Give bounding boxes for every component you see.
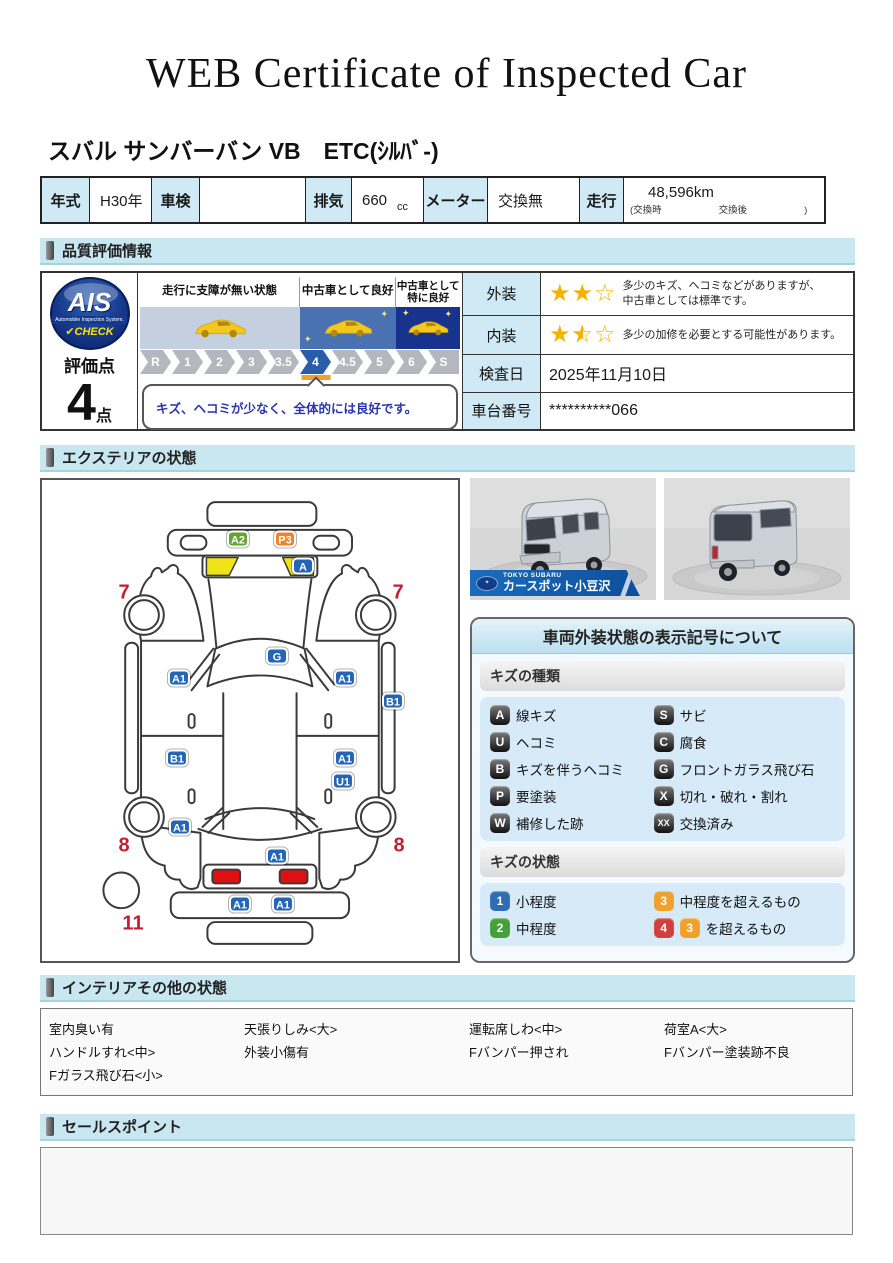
state-badge-icon: 3 (654, 891, 674, 911)
damage-marker: A1 (334, 750, 356, 767)
exterior-rating-row: 外装 ★★☆ 多少のキズ、ヘコミなどがありますが、 中古車としては標準です。 (463, 273, 853, 316)
zone-band-2: ✦ ✦ (300, 307, 396, 349)
interior-rating-row: 内装 ★★☆☆ 多少の加修を必要とする可能性があります。 (463, 316, 853, 355)
spec-mileage-label: 走行 (580, 178, 624, 222)
page-title: WEB Certificate of Inspected Car (0, 50, 893, 98)
section-marker-icon (46, 978, 54, 997)
inspection-date-row: 検査日 2025年11月10日 (463, 355, 853, 392)
photo-rear-exterior (664, 478, 850, 600)
legend-kind-item: P 要塗装 (490, 786, 648, 806)
interior-section-title: インテリアその他の状態 (62, 977, 227, 998)
legend-kind-item: S サビ (654, 705, 835, 725)
spec-inspection-label: 車検 (152, 178, 200, 222)
legend-state-item: 4 3 を超えるもの (654, 918, 835, 938)
wheel-number: 8 (118, 835, 129, 858)
interior-notes-column: 室内臭い有ハンドルすれ<中>Fガラス飛び石<小> (49, 1019, 244, 1085)
ais-check-label: ✔CHECK (65, 325, 113, 338)
mileage-number: 48,596km (630, 184, 714, 201)
kind-label: 腐食 (680, 732, 707, 752)
certificate-page: WEB Certificate of Inspected Car スバル サンバ… (0, 0, 893, 1263)
kind-badge-icon: U (490, 732, 510, 752)
kind-label: ヘコミ (516, 732, 557, 752)
exterior-right-column: ✦ TOKYO SUBARU カースポット小豆沢 (470, 478, 855, 963)
exterior-section-title: エクステリアの状態 (62, 447, 197, 468)
scale-segment: 2 (204, 350, 235, 374)
legend-kind-item: W 補修した跡 (490, 813, 648, 833)
sales-section-title: セールスポイント (62, 1116, 182, 1137)
damage-marker: P3 (274, 531, 296, 548)
legend-title: 車両外装状態の表示記号について (472, 619, 853, 654)
damage-marker: A1 (266, 848, 288, 865)
interior-notes-box: 室内臭い有ハンドルすれ<中>Fガラス飛び石<小> 天張りしみ<大>外装小傷有 運… (40, 1008, 853, 1096)
spec-inspection-value (200, 178, 306, 222)
interior-note: 外装小傷有 (244, 1042, 469, 1065)
kind-label: 要塗装 (516, 786, 557, 806)
interior-stars: ★★☆☆ (549, 323, 617, 347)
interior-note: Fガラス飛び石<小> (49, 1065, 244, 1088)
state-label: 中程度を超えるもの (680, 891, 801, 911)
quality-section-bar: 品質評価情報 (40, 238, 855, 265)
damage-marker: A1 (334, 670, 356, 687)
damage-marker: A1 (168, 670, 190, 687)
interior-note: 天張りしみ<大> (244, 1019, 469, 1042)
kind-badge-icon: XX (654, 813, 674, 833)
damage-marker: B1 (382, 693, 404, 710)
score-unit: 点 (96, 409, 112, 425)
kind-badge-icon: S (654, 705, 674, 725)
mileage-note: (交換時 交換後 ) (630, 202, 807, 216)
legend-kind-item: G フロントガラス飛び石 (654, 759, 835, 779)
damage-marker: A2 (227, 531, 249, 548)
scale-segment: 5 (364, 350, 395, 374)
quality-box: AIS Automobile Inspection System. ✔CHECK… (40, 271, 855, 431)
legend-kind-item: XX 交換済み (654, 813, 835, 833)
score-value: 4 (67, 377, 96, 429)
displacement-number: 660 (362, 192, 387, 209)
interior-notes-column: 荷室A<大>Fバンパー塗装跡不良 (664, 1019, 844, 1085)
spec-year-value: H30年 (90, 178, 152, 222)
dealer-banner-text: TOKYO SUBARU カースポット小豆沢 (503, 573, 610, 592)
vin-value: **********066 (541, 393, 853, 429)
interior-note: Fバンパー押され (469, 1042, 664, 1065)
scale-segment: 3.5 (268, 350, 299, 374)
section-marker-icon (46, 241, 54, 260)
legend-states-panel: 1 小程度 3 中程度を超えるもの 2 中程度 4 (480, 883, 845, 946)
scale-pointer-row (140, 374, 460, 381)
sparkle-icon: ✦ (402, 308, 410, 319)
ais-column: AIS Automobile Inspection System. ✔CHECK… (42, 273, 138, 429)
sales-section-bar: セールスポイント (40, 1114, 855, 1141)
vin-label: 車台番号 (463, 393, 541, 429)
damage-marker: U1 (332, 773, 354, 790)
legend-kind-item: X 切れ・破れ・割れ (654, 786, 835, 806)
section-marker-icon (46, 448, 54, 467)
state-badge-icon: 3 (680, 918, 700, 938)
wheel-number: 7 (118, 582, 129, 605)
kind-badge-icon: X (654, 786, 674, 806)
spec-mileage-value: 48,596km (交換時 交換後 ) (624, 178, 824, 222)
vehicle-name: スバル サンバーバン VB ETC(ｼﾙﾊﾞ-) (48, 132, 893, 166)
exterior-rating-value: ★★☆ 多少のキズ、ヘコミなどがありますが、 中古車としては標準です。 (541, 273, 853, 315)
inspection-date-value: 2025年11月10日 (541, 355, 853, 391)
spec-meter-label: メーター (424, 178, 488, 222)
kind-badge-icon: P (490, 786, 510, 806)
damage-marker: A1 (229, 896, 251, 913)
kind-label: 線キズ (516, 705, 557, 725)
zone-label-1: 走行に支障が無い状態 (140, 277, 299, 307)
scale-segment: 4.5 (332, 350, 363, 374)
interior-note: Fバンパー塗装跡不良 (664, 1042, 844, 1065)
spec-displacement-value: 660 cc (352, 178, 424, 222)
van-outline-drawing (42, 480, 458, 961)
interior-rating-label: 内装 (463, 316, 541, 354)
spec-meter-value: 交換無 (488, 178, 580, 222)
kind-badge-icon: A (490, 705, 510, 725)
photo-front-exterior: ✦ TOKYO SUBARU カースポット小豆沢 (470, 478, 656, 600)
scale-segment: 4 (300, 350, 331, 374)
legend-kinds-panel: A 線キズ S サビ U ヘコミ (480, 697, 845, 841)
wheel-number: 7 (392, 582, 403, 605)
sparkle-icon: ✦ (380, 309, 388, 320)
zone-band: ✦ ✦ ✦ ✦ (140, 307, 460, 349)
legend-kinds-title: キズの種類 (480, 661, 845, 691)
legend-body: キズの種類 A 線キズ S サビ (472, 654, 853, 959)
vin-row: 車台番号 **********066 (463, 393, 853, 429)
interior-note: 荷室A<大> (664, 1019, 844, 1042)
scale-segment: 3 (236, 350, 267, 374)
kind-badge-icon: W (490, 813, 510, 833)
legend-state-item: 2 中程度 (490, 918, 648, 938)
dealer-name: カースポット小豆沢 (503, 580, 610, 593)
kind-label: フロントガラス飛び石 (680, 759, 815, 779)
rating-comment-box: キズ、ヘコミが少なく、全体的には良好です。 (142, 384, 458, 430)
rating-scale: R 1 2 3 3.5 4 4.5 5 6 S (140, 350, 460, 374)
zone-label-3: 中古車として 特に良好 (395, 277, 460, 307)
interior-rating-note: 多少の加修を必要とする可能性があります。 (623, 328, 842, 343)
damage-marker: G (266, 648, 288, 665)
dealer-banner: ✦ TOKYO SUBARU カースポット小豆沢 (470, 570, 640, 596)
interior-notes-column: 運転席しわ<中>Fバンパー押され (469, 1019, 664, 1085)
interior-note: 運転席しわ<中> (469, 1019, 664, 1042)
kind-label: 切れ・破れ・割れ (680, 786, 788, 806)
exterior-content: A2 P3 A G A1 A1 B1 B1 (40, 478, 855, 963)
state-badge-icon: 4 (654, 918, 674, 938)
legend-state-item: 3 中程度を超えるもの (654, 891, 835, 911)
damage-diagram: A2 P3 A G A1 A1 B1 B1 (40, 478, 460, 963)
legend-kind-item: A 線キズ (490, 705, 648, 725)
scale-segment: 1 (172, 350, 203, 374)
legend-kind-item: U ヘコミ (490, 732, 648, 752)
displacement-unit: cc (397, 201, 408, 213)
state-label: 中程度 (516, 918, 557, 938)
wheel-number: 8 (393, 835, 404, 858)
scale-segment: R (140, 350, 171, 374)
legend-state-item: 1 小程度 (490, 891, 648, 911)
ais-logo-subtext: Automobile Inspection System. (52, 316, 127, 324)
damage-marker: A1 (272, 896, 294, 913)
kind-label: サビ (680, 705, 707, 725)
zone-label-2: 中古車として良好 (299, 277, 395, 307)
sales-points-box (40, 1147, 853, 1235)
sparkle-icon: ✦ (444, 309, 452, 320)
quality-section-title: 品質評価情報 (62, 240, 152, 261)
legend-kind-item: C 腐食 (654, 732, 835, 752)
sparkle-icon: ✦ (304, 334, 312, 345)
damage-marker: A (292, 558, 314, 575)
kind-label: キズを伴うヘコミ (516, 759, 624, 779)
exterior-rating-label: 外装 (463, 273, 541, 315)
car-icon (192, 316, 248, 340)
kind-badge-icon: B (490, 759, 510, 779)
vehicle-photos: ✦ TOKYO SUBARU カースポット小豆沢 (470, 478, 855, 600)
interior-section-bar: インテリアその他の状態 (40, 975, 855, 1002)
car-icon (322, 317, 374, 339)
interior-rating-value: ★★☆☆ 多少の加修を必要とする可能性があります。 (541, 316, 853, 354)
state-badge-icon: 2 (490, 918, 510, 938)
wheel-number: 11 (122, 913, 143, 936)
state-label: を超えるもの (706, 918, 787, 938)
subaru-logo-icon: ✦ (476, 576, 498, 591)
section-marker-icon (46, 1117, 54, 1136)
spec-year-label: 年式 (42, 178, 90, 222)
rating-scale-column: 走行に支障が無い状態 中古車として良好 中古車として 特に良好 ✦ ✦ ✦ ✦ (138, 273, 462, 429)
damage-diagram-stage: A2 P3 A G A1 A1 B1 B1 (42, 480, 458, 961)
spec-displacement-label: 排気 (306, 178, 352, 222)
zone-band-1 (140, 307, 300, 349)
damage-legend: 車両外装状態の表示記号について キズの種類 A 線キズ S (470, 617, 855, 963)
rating-comment: キズ、ヘコミが少なく、全体的には良好です。 (156, 398, 417, 417)
spec-table: 年式 H30年 車検 排気 660 cc メーター 交換無 走行 48,596k… (40, 176, 826, 224)
zone-band-3: ✦ ✦ (396, 307, 460, 349)
legend-kind-item: B キズを伴うヘコミ (490, 759, 648, 779)
exterior-stars: ★★☆ (549, 282, 617, 306)
state-badge-icon: 1 (490, 891, 510, 911)
exterior-rating-note: 多少のキズ、ヘコミなどがありますが、 中古車としては標準です。 (623, 279, 821, 309)
rear-photo-image (664, 478, 850, 600)
scale-segment: 6 (396, 350, 427, 374)
ais-logo: AIS Automobile Inspection System. ✔CHECK (50, 277, 130, 350)
legend-states-title: キズの状態 (480, 847, 845, 877)
interior-notes-column: 天張りしみ<大>外装小傷有 (244, 1019, 469, 1085)
score-row: 4 点 (67, 377, 112, 429)
scale-segment: S (428, 350, 459, 374)
zone-labels: 走行に支障が無い状態 中古車として良好 中古車として 特に良好 (140, 277, 460, 307)
interior-note: ハンドルすれ<中> (49, 1042, 244, 1065)
kind-label: 交換済み (680, 813, 734, 833)
quality-info-table: 外装 ★★☆ 多少のキズ、ヘコミなどがありますが、 中古車としては標準です。 内… (462, 273, 853, 429)
kind-label: 補修した跡 (516, 813, 584, 833)
kind-badge-icon: C (654, 732, 674, 752)
state-label: 小程度 (516, 891, 557, 911)
inspection-date-label: 検査日 (463, 355, 541, 391)
exterior-section-bar: エクステリアの状態 (40, 445, 855, 472)
damage-marker: A1 (169, 819, 191, 836)
interior-note: 室内臭い有 (49, 1019, 244, 1042)
kind-badge-icon: G (654, 759, 674, 779)
ais-logo-text: AIS (68, 289, 111, 315)
damage-marker: B1 (166, 750, 188, 767)
car-icon (406, 318, 450, 338)
